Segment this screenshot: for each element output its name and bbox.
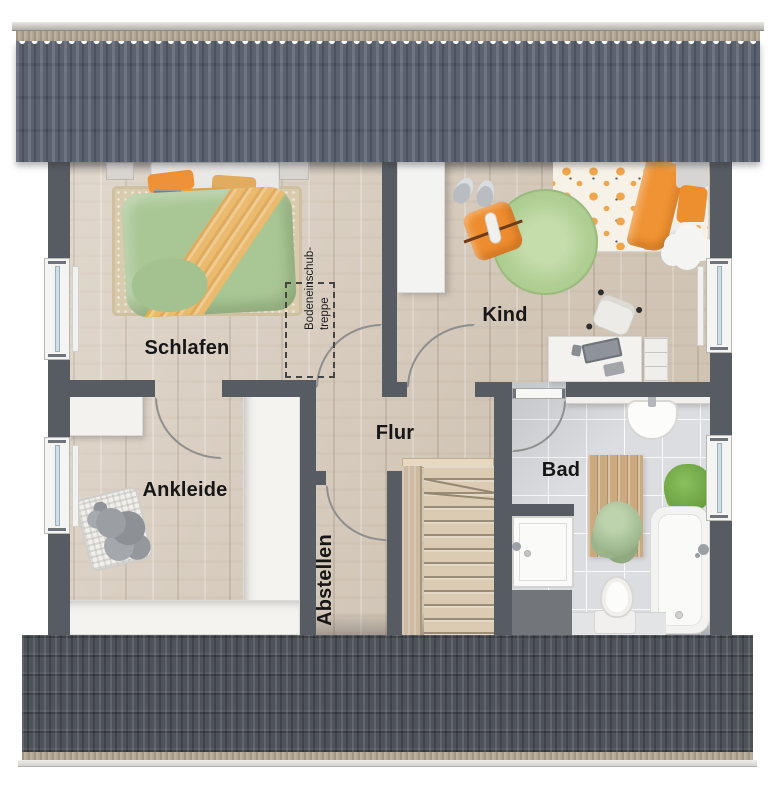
radiator-schlafen xyxy=(72,266,79,352)
roof-fascia-top xyxy=(16,31,760,41)
roof-top xyxy=(0,0,775,162)
window-ankleide xyxy=(44,437,70,534)
roof-ridge xyxy=(12,22,764,31)
window-frame-tick xyxy=(710,438,728,441)
cloud-side-table xyxy=(664,234,686,256)
wall-abstellen-stub xyxy=(316,471,326,485)
wall-kind-bad-left xyxy=(475,382,512,397)
roof-slate-bottom xyxy=(22,635,753,752)
attic-hatch-box: Bodeneinschub- treppe xyxy=(285,282,335,378)
room-label-ankleide: Ankleide xyxy=(115,480,255,501)
room-label-schlafen: Schlafen xyxy=(117,338,257,359)
window-frame-tick xyxy=(710,347,728,350)
radiator-kind xyxy=(697,266,704,346)
window-frame-tick xyxy=(710,261,728,264)
window-glazing xyxy=(55,266,60,352)
window-frame-tick xyxy=(710,515,728,518)
window-bad xyxy=(706,435,732,521)
wardrobe-bottom xyxy=(67,600,300,635)
bathtub-drain xyxy=(675,611,683,619)
stair-stringer xyxy=(402,466,422,635)
wall-bad-stairs xyxy=(494,397,512,635)
door-leaf-bad xyxy=(512,388,566,399)
shower-head xyxy=(512,542,521,551)
chair-seat xyxy=(590,292,638,338)
plant xyxy=(664,464,712,512)
window-frame-tick xyxy=(48,354,66,357)
drawer-unit xyxy=(644,337,668,382)
room-label-bad: Bad xyxy=(521,460,601,481)
window-frame-tick xyxy=(48,440,66,443)
wall-outer-left xyxy=(48,160,70,635)
wall-schlafen-ankleide xyxy=(48,380,155,397)
bathtub-faucet xyxy=(698,544,709,555)
wall-schlafen-kind xyxy=(382,160,397,397)
room-label-flur: Flur xyxy=(355,423,435,444)
roof-fascia-bottom xyxy=(22,752,753,760)
shower-drain xyxy=(524,550,531,557)
wall-kind-bad-right xyxy=(566,382,710,397)
utility-block xyxy=(510,590,572,635)
wall-kind-flur-stub xyxy=(397,382,407,397)
attic-hatch-line2: treppe xyxy=(317,297,332,330)
room-label-abstellen: Abstellen xyxy=(315,520,339,640)
window-glazing xyxy=(717,266,722,345)
bathtub-basin xyxy=(658,514,702,626)
attic-hatch-line1: Bodeneinschub- xyxy=(303,247,318,330)
window-glazing xyxy=(717,443,722,513)
shower-tray xyxy=(512,516,574,588)
desk-item xyxy=(571,344,582,356)
kids-wardrobe xyxy=(397,160,445,293)
roof-gutter xyxy=(18,760,757,767)
duvet xyxy=(121,186,297,319)
kids-pillow-orange xyxy=(676,184,708,225)
radiator-ankleide xyxy=(72,445,79,527)
nightstand-right xyxy=(279,160,309,180)
wall-abstellen-stairs xyxy=(387,471,402,635)
window-frame-tick xyxy=(48,528,66,531)
roof-bottom xyxy=(0,633,775,773)
window-frame-tick xyxy=(48,261,66,264)
room-label-kind: Kind xyxy=(455,305,555,326)
kids-pillow-gray xyxy=(676,158,708,188)
roof-slate-top xyxy=(16,41,760,162)
nightstand-left xyxy=(106,162,134,180)
roof-tile-scallops xyxy=(16,41,760,49)
wall-outer-right xyxy=(710,160,732,635)
floor-plan: Bodeneinschub- treppe Schlafen Kind Ankl… xyxy=(0,0,775,796)
window-glazing xyxy=(55,445,60,526)
window-schlafen xyxy=(44,258,70,360)
toilet-bowl xyxy=(600,576,634,618)
window-kind xyxy=(706,258,732,353)
wall-shower-stub xyxy=(512,504,574,516)
